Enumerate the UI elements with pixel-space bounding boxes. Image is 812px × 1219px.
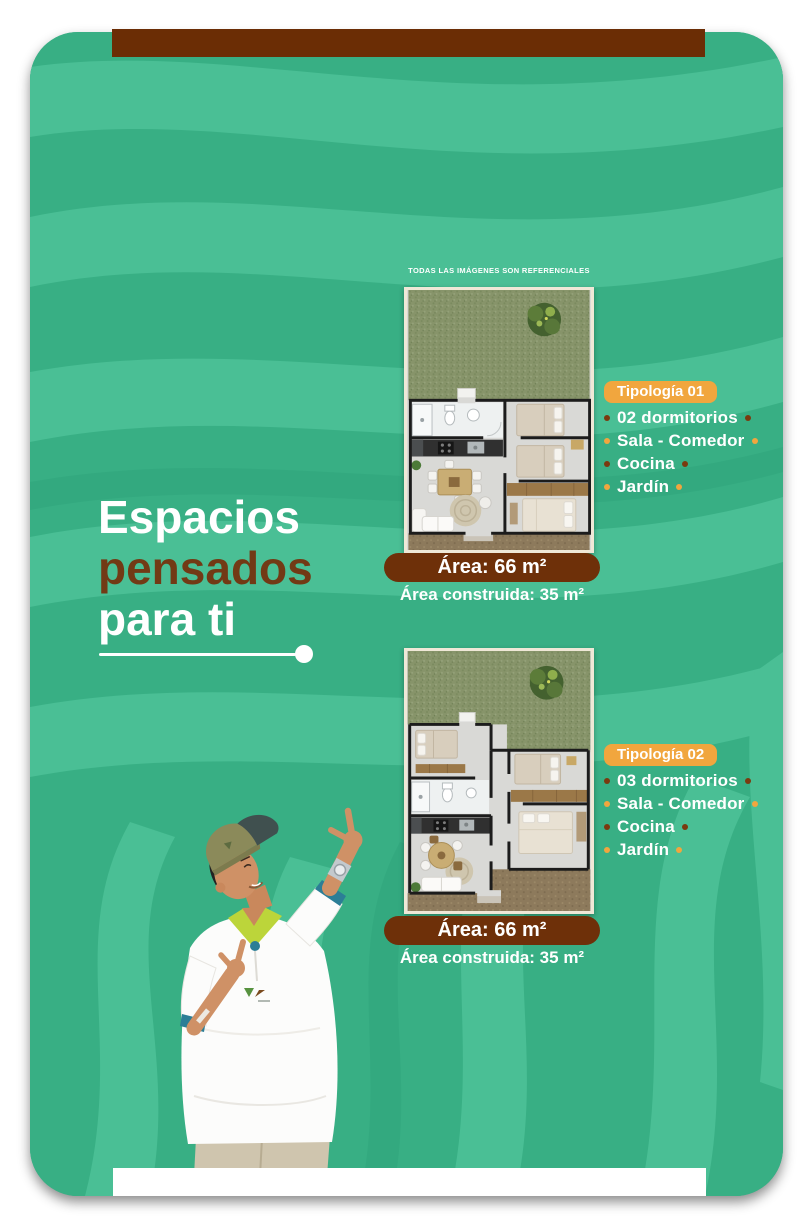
typology-2-features: 03 dormitorios Sala - Comedor Cocina Jar… (604, 769, 758, 861)
typology-2-block: Tipología 02 03 dormitorios Sala - Comed… (604, 744, 758, 861)
images-disclaimer-text: TODAS LAS IMÁGENES SON REFERENCIALES (384, 266, 614, 275)
bullet-icon (676, 484, 682, 490)
feature-item: 03 dormitorios (604, 769, 758, 792)
bullet-icon (604, 484, 610, 490)
bullet-icon (682, 824, 688, 830)
area-badge-1: Área: 66 m² (384, 553, 600, 582)
bullet-icon (752, 438, 758, 444)
bullet-icon (604, 415, 610, 421)
heading-underline (99, 653, 296, 656)
built-area-text-2: Área construida: 35 m² (369, 948, 615, 968)
typology-1-block: Tipología 01 02 dormitorios Sala - Comed… (604, 381, 758, 498)
bullet-icon (745, 415, 751, 421)
bullet-icon (604, 461, 610, 467)
heading-line-1: Espacios (98, 492, 313, 543)
feature-item: Cocina (604, 815, 758, 838)
bullet-icon (604, 801, 610, 807)
bullet-icon (604, 824, 610, 830)
man-pointing-up-illustration (94, 796, 394, 1176)
bullet-icon (745, 778, 751, 784)
typology-2-badge: Tipología 02 (604, 744, 717, 766)
heading-line-3: para ti (98, 594, 313, 645)
tree-icon (530, 666, 564, 700)
floorplan-image-tipologia-02 (404, 648, 594, 914)
man-pointing-up-photo (94, 796, 394, 1176)
bullet-icon (676, 847, 682, 853)
tree-icon (528, 303, 561, 336)
main-heading: Espacios pensados para ti (98, 492, 313, 645)
bullet-icon (604, 438, 610, 444)
heading-underline-dot (295, 645, 313, 663)
feature-item: Jardín (604, 838, 758, 861)
heading-line-2: pensados (98, 543, 313, 594)
bullet-icon (604, 847, 610, 853)
bullet-icon (604, 778, 610, 784)
bottom-footer-bar (113, 1168, 706, 1196)
bullet-icon (682, 461, 688, 467)
typology-1-badge: Tipología 01 (604, 381, 717, 403)
feature-item: Jardín (604, 475, 758, 498)
feature-item: Cocina (604, 452, 758, 475)
typology-1-features: 02 dormitorios Sala - Comedor Cocina Jar… (604, 406, 758, 498)
feature-item: Sala - Comedor (604, 429, 758, 452)
bullet-icon (752, 801, 758, 807)
feature-item: Sala - Comedor (604, 792, 758, 815)
floorplan-render-1 (407, 290, 591, 550)
floorplan-image-tipologia-01 (404, 287, 594, 553)
feature-item: 02 dormitorios (604, 406, 758, 429)
floorplan-render-2 (407, 651, 591, 911)
built-area-text-1: Área construida: 35 m² (369, 585, 615, 605)
top-accent-bar (112, 29, 705, 57)
area-badge-2: Área: 66 m² (384, 916, 600, 945)
